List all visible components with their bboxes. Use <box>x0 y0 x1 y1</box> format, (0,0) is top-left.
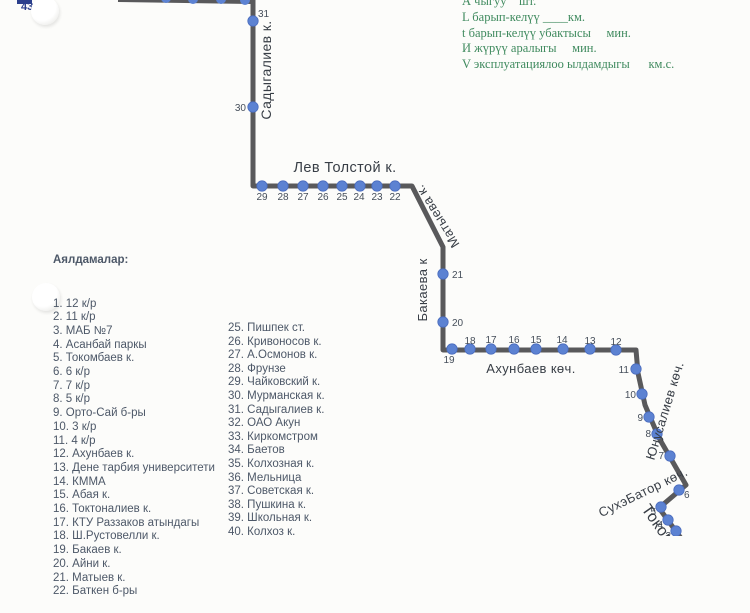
stop-dot-26 <box>318 181 328 191</box>
stop-dot-19 <box>447 344 457 354</box>
stop-list-item: 2. 11 к/р <box>53 311 215 325</box>
stop-dot-20 <box>438 317 448 327</box>
stop-number-22: 22 <box>389 192 401 203</box>
stop-list-item: 19. Бакаев к. <box>53 544 215 558</box>
stop-dot-7 <box>665 451 675 461</box>
legend-line: L барып-келүү ____км. <box>462 10 674 26</box>
stop-dot-10 <box>637 389 647 399</box>
legend-line: А чыгуу шт. <box>462 0 674 10</box>
stops-list-title: Аялдамалар: <box>53 254 215 268</box>
stop-list-item: 30. Мурманская к. <box>228 390 325 404</box>
stop-dot-9 <box>644 412 654 422</box>
stop-number-24: 24 <box>353 192 365 203</box>
stop-list-item: 28. Фрунзе <box>228 363 325 377</box>
stop-dot-27 <box>298 181 308 191</box>
stop-dot-29 <box>257 181 267 191</box>
stop-list-item: 11. 4 к/р <box>53 435 215 449</box>
stop-number-23: 23 <box>371 192 383 203</box>
stop-list-item: 20. Айни к. <box>53 558 215 572</box>
stop-list-item: 29. Чайковский к. <box>228 376 325 390</box>
stop-dot-cut <box>240 0 250 5</box>
stop-list-item: 34. Баетов <box>228 444 325 458</box>
stop-list-item: 17. КТУ Раззаков атындагы <box>53 517 215 531</box>
stop-dot-30 <box>248 102 258 112</box>
stop-list-item: 32. ОАО Акун <box>228 417 325 431</box>
street-label-0: Садыгалиев к. <box>258 20 274 119</box>
street-label-3: Бакаева к <box>415 258 430 321</box>
stop-dot-21 <box>438 269 448 279</box>
stop-number-14: 14 <box>556 335 568 346</box>
stop-number-13: 13 <box>584 336 596 347</box>
stop-number-19: 19 <box>443 355 455 366</box>
stop-list-item: 36. Мельница <box>228 472 325 486</box>
stop-number-27: 27 <box>297 192 309 203</box>
stop-number-18: 18 <box>464 336 476 347</box>
stop-list-item: 3. МАБ №7 <box>53 325 215 339</box>
stop-list-item: 12. Ахунбаев к. <box>53 448 215 462</box>
legend-line: t барып-келүү убактысы мин. <box>462 26 674 42</box>
stop-list-item: 1. 12 к/р <box>53 298 215 312</box>
stop-list-item: 31. Садыгалиев к. <box>228 404 325 418</box>
stop-list-item: 9. Орто-Сай б-ры <box>53 407 215 421</box>
stop-number-11: 11 <box>619 365 630 376</box>
stop-list-item: 14. КММА <box>53 476 215 490</box>
stop-list-item: 27. А.Осмонов к. <box>228 349 325 363</box>
stops-list-right: 25. Пишпек ст.26. Кривоносов к.27. А.Осм… <box>228 322 325 540</box>
stop-dot-11 <box>631 364 641 374</box>
stop-dot-23 <box>372 181 382 191</box>
stop-list-item: 33. Киркомстром <box>228 431 325 445</box>
stop-dot-22 <box>390 181 400 191</box>
stop-list-item: 22. Баткен б-ры <box>53 585 215 599</box>
stop-number-29: 29 <box>256 192 268 203</box>
stop-number-20: 20 <box>452 318 464 329</box>
stop-list-item: 40. Колхоз к. <box>228 526 325 540</box>
stop-number-30: 30 <box>235 103 247 114</box>
stop-number-9: 9 <box>637 413 643 424</box>
stop-number-28: 28 <box>277 192 289 203</box>
stop-number-25: 25 <box>336 192 348 203</box>
stop-list-item: 5. Токомбаев к. <box>53 352 215 366</box>
street-label-4: Ахунбаев көч. <box>486 361 575 376</box>
stop-list-item: 4. Асанбай паркы <box>53 339 215 353</box>
stop-number-26: 26 <box>317 192 329 203</box>
stop-number-16: 16 <box>508 335 520 346</box>
street-label-1: Лев Толстой к. <box>293 160 396 176</box>
stops-list-left-items: 1. 12 к/р2. 11 к/р3. МАБ №74. Асанбай па… <box>53 298 215 599</box>
stop-list-item: 18. Ш.Рустовелли к. <box>53 530 215 544</box>
stop-list-item: 21. Матыев к. <box>53 572 215 586</box>
stop-list-item: 16. Токтоналиев к. <box>53 503 215 517</box>
stop-list-item: 25. Пишпек ст. <box>228 322 325 336</box>
stop-number-12: 12 <box>610 337 622 348</box>
stop-number-10: 10 <box>625 390 637 401</box>
stop-list-item: 8. 5 к/р <box>53 393 215 407</box>
stop-list-item: 37. Советская к. <box>228 485 325 499</box>
stop-list-item: 6. 6 к/р <box>53 366 215 380</box>
stop-list-item: 7. 7 к/р <box>53 380 215 394</box>
stop-list-item: 13. Дене тарбия университети <box>53 462 215 476</box>
stop-number-15: 15 <box>530 335 542 346</box>
stop-dot-cut <box>188 0 198 4</box>
legend-line: И жүрүү аралыгы мин. <box>462 41 674 57</box>
stop-list-item: 38. Пушкина к. <box>228 499 325 513</box>
stop-dot-28 <box>278 181 288 191</box>
legend: А чыгуу шт.L барып-келүү ____км.t барып-… <box>462 0 674 73</box>
stop-dot-24 <box>355 181 365 191</box>
stop-list-item: 10. 3 к/р <box>53 421 215 435</box>
route-line-top-cut <box>118 0 251 2</box>
stop-dot-25 <box>337 181 347 191</box>
stop-number-6: 6 <box>684 490 690 501</box>
stop-list-item: 15. Абая к. <box>53 489 215 503</box>
stop-number-17: 17 <box>485 335 497 346</box>
stop-dot-6 <box>674 485 684 495</box>
stops-list-left: Аялдамалар: 1. 12 к/р2. 11 к/р3. МАБ №74… <box>53 227 215 613</box>
stop-list-item: 26. Кривоносов к. <box>228 336 325 350</box>
legend-line: V эксплуатациялоо ылдамдыгы км.с. <box>462 57 674 73</box>
stop-dot-31 <box>248 16 258 26</box>
stop-list-item: 35. Колхозная к. <box>228 458 325 472</box>
stop-number-31: 31 <box>258 9 270 20</box>
stop-list-item: 39. Школьная к. <box>228 512 325 526</box>
stop-number-21: 21 <box>452 270 464 281</box>
